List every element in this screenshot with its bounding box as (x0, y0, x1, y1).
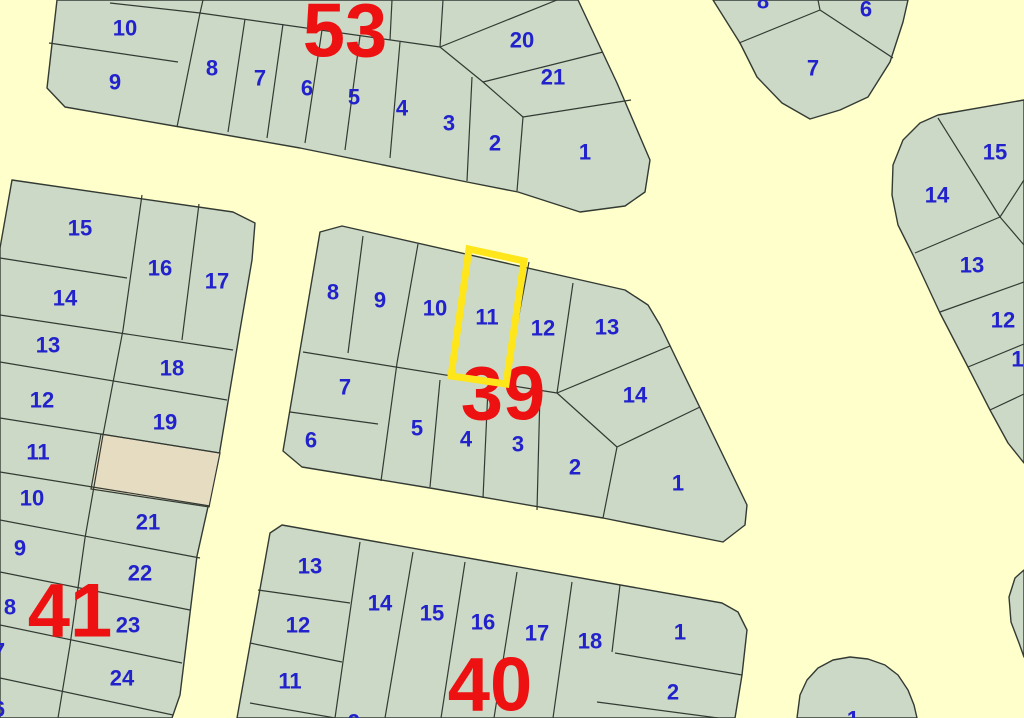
parcel-number: 8 (757, 0, 769, 14)
parcel-number: 16 (471, 610, 495, 635)
parcel-number: 14 (623, 383, 648, 408)
parcel-number: 15 (983, 140, 1007, 165)
parcel-number: 11 (278, 669, 301, 694)
parcel-number: 13 (298, 554, 322, 579)
parcel-number: 14 (368, 591, 393, 616)
parcel-number: 12 (991, 308, 1015, 333)
map-canvas[interactable]: 1098765432120215376815141312118910111213… (0, 0, 1024, 718)
parcel-number: 1 (847, 707, 859, 718)
parcel-number: 21 (136, 510, 160, 535)
parcel-number: 1 (672, 471, 684, 496)
parcel-number: 23 (116, 613, 140, 638)
parcel-number: 2 (667, 680, 679, 705)
parcel-number: 3 (443, 111, 455, 136)
parcel-number: 9 (109, 70, 121, 95)
parcel-number: 19 (153, 410, 177, 435)
parcel-number: 22 (128, 561, 152, 586)
parcel-number: 10 (423, 296, 447, 321)
parcel-number: 13 (36, 333, 60, 358)
parcel-number: 15 (68, 216, 92, 241)
parcel-number: 2 (569, 455, 581, 480)
parcel-number: 8 (327, 280, 339, 305)
parcel-number: 16 (148, 256, 172, 281)
parcel-number: 15 (420, 601, 444, 626)
parcel-number: 7 (807, 56, 819, 81)
block-number: 53 (303, 0, 388, 74)
parcel-number: 7 (339, 375, 351, 400)
parcel-number: 9 (374, 288, 386, 313)
parcel-number: 6 (860, 0, 872, 22)
block-number: 40 (448, 643, 533, 718)
parcel-number: 2 (489, 131, 501, 156)
parcel-number: 7 (0, 639, 5, 664)
parcel-number: 8 (206, 56, 218, 81)
parcel-number: 8 (4, 595, 16, 620)
parcel-number: 9 (14, 536, 26, 561)
parcel-number: 12 (531, 316, 555, 341)
parcel-number: 7 (254, 66, 266, 91)
cadastral-parcel-map[interactable]: 1098765432120215376815141312118910111213… (0, 0, 1024, 718)
block-number: 41 (28, 569, 113, 654)
parcel-number: 13 (960, 253, 984, 278)
parcel-number: 17 (205, 269, 229, 294)
parcel-number: 18 (160, 356, 184, 381)
parcel-number: 1 (674, 620, 686, 645)
parcel-number: 21 (541, 65, 565, 90)
parcel-number: 18 (578, 629, 602, 654)
parcel-number: 14 (53, 286, 78, 311)
parcel-number: 6 (0, 697, 5, 718)
parcel-number: 13 (595, 315, 619, 340)
parcel-number: 1 (579, 140, 591, 165)
parcel-number: 12 (30, 388, 54, 413)
parcel-number: 24 (110, 666, 135, 691)
parcel-number: 6 (305, 428, 317, 453)
parcel-number: 10 (113, 16, 137, 41)
parcel-number: 20 (510, 28, 534, 53)
parcel-number: 4 (396, 96, 409, 121)
parcel-number: 5 (411, 416, 423, 441)
parcel-number: 14 (925, 183, 950, 208)
parcel-number: 11 (475, 305, 498, 330)
parcel-number: 6 (301, 76, 313, 101)
parcel-number: 10 (20, 486, 44, 511)
parcel-number: 9 (348, 710, 360, 718)
parcel-number: 11 (26, 440, 49, 465)
parcel-number: 5 (348, 85, 360, 110)
parcel-number: 12 (286, 613, 310, 638)
parcel-number: 11 (1011, 347, 1024, 372)
block-number: 39 (461, 352, 546, 437)
